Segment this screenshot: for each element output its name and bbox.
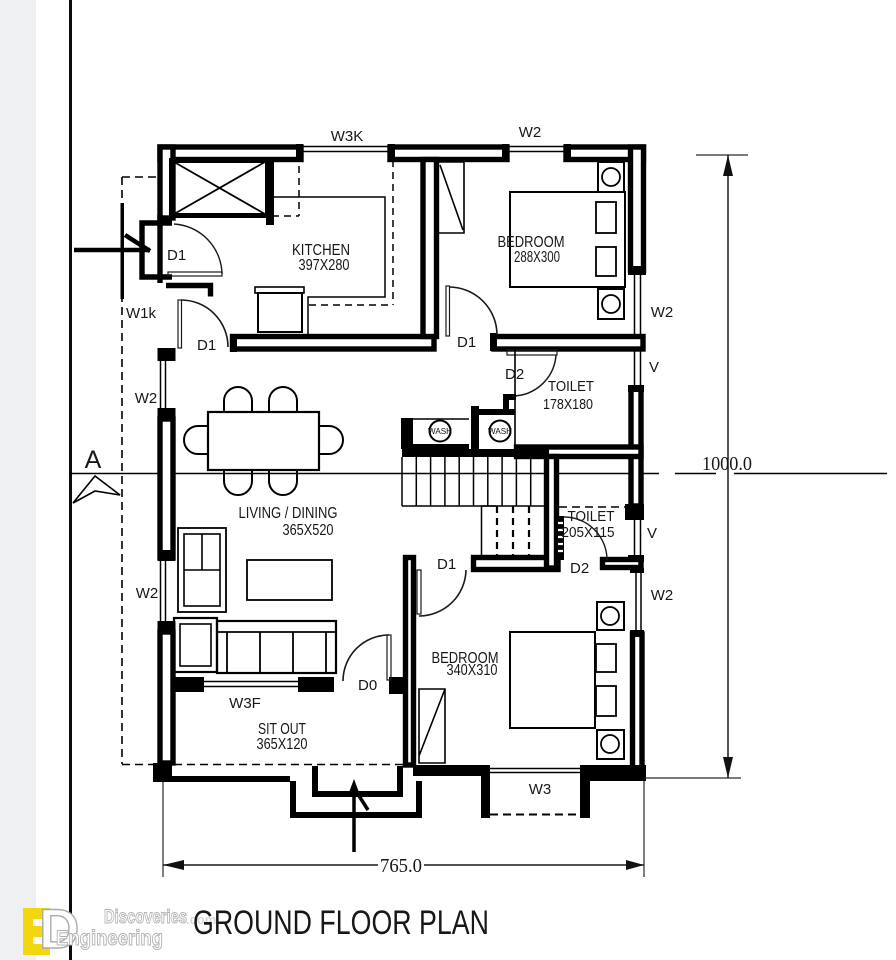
svg-text:365X120: 365X120 (257, 736, 308, 753)
svg-text:D2: D2 (570, 560, 589, 577)
svg-text:V: V (647, 525, 657, 542)
svg-text:WASH: WASH (488, 427, 512, 436)
svg-text:W2: W2 (135, 390, 158, 407)
svg-text:340X310: 340X310 (447, 662, 498, 679)
svg-text:W3: W3 (529, 781, 552, 798)
svg-text:TOILET: TOILET (568, 509, 615, 525)
svg-text:W2: W2 (519, 124, 542, 141)
svg-text:1000.0: 1000.0 (702, 453, 752, 475)
svg-text:D1: D1 (167, 247, 186, 264)
svg-text:WASH: WASH (428, 427, 452, 436)
svg-text:TOILET: TOILET (548, 379, 594, 395)
svg-text:D1: D1 (437, 556, 456, 573)
svg-text:LIVING / DINING: LIVING / DINING (239, 505, 338, 522)
svg-text:Engineering: Engineering (56, 927, 163, 950)
svg-text:V: V (649, 359, 659, 376)
svg-text:W2: W2 (651, 587, 674, 604)
svg-text:W2: W2 (651, 304, 674, 321)
svg-text:W3F: W3F (229, 695, 261, 712)
svg-text:365X520: 365X520 (283, 522, 334, 539)
svg-text:D0: D0 (358, 677, 377, 694)
svg-text:205X115: 205X115 (562, 525, 615, 541)
svg-text:GROUND FLOOR PLAN: GROUND FLOOR PLAN (193, 904, 489, 942)
svg-text:D1: D1 (457, 334, 476, 351)
svg-text:178X180: 178X180 (543, 397, 593, 413)
svg-text:W2: W2 (136, 585, 159, 602)
svg-text:Discoveries: Discoveries (104, 907, 187, 928)
svg-text:D2: D2 (505, 366, 524, 383)
svg-text:W3K: W3K (331, 128, 364, 145)
svg-text:397X280: 397X280 (299, 257, 350, 274)
svg-text:765.0: 765.0 (380, 855, 422, 877)
svg-text:288X300: 288X300 (514, 249, 560, 266)
svg-text:D1: D1 (197, 337, 216, 354)
svg-text:W1k: W1k (126, 305, 157, 322)
svg-text:A: A (85, 446, 102, 474)
